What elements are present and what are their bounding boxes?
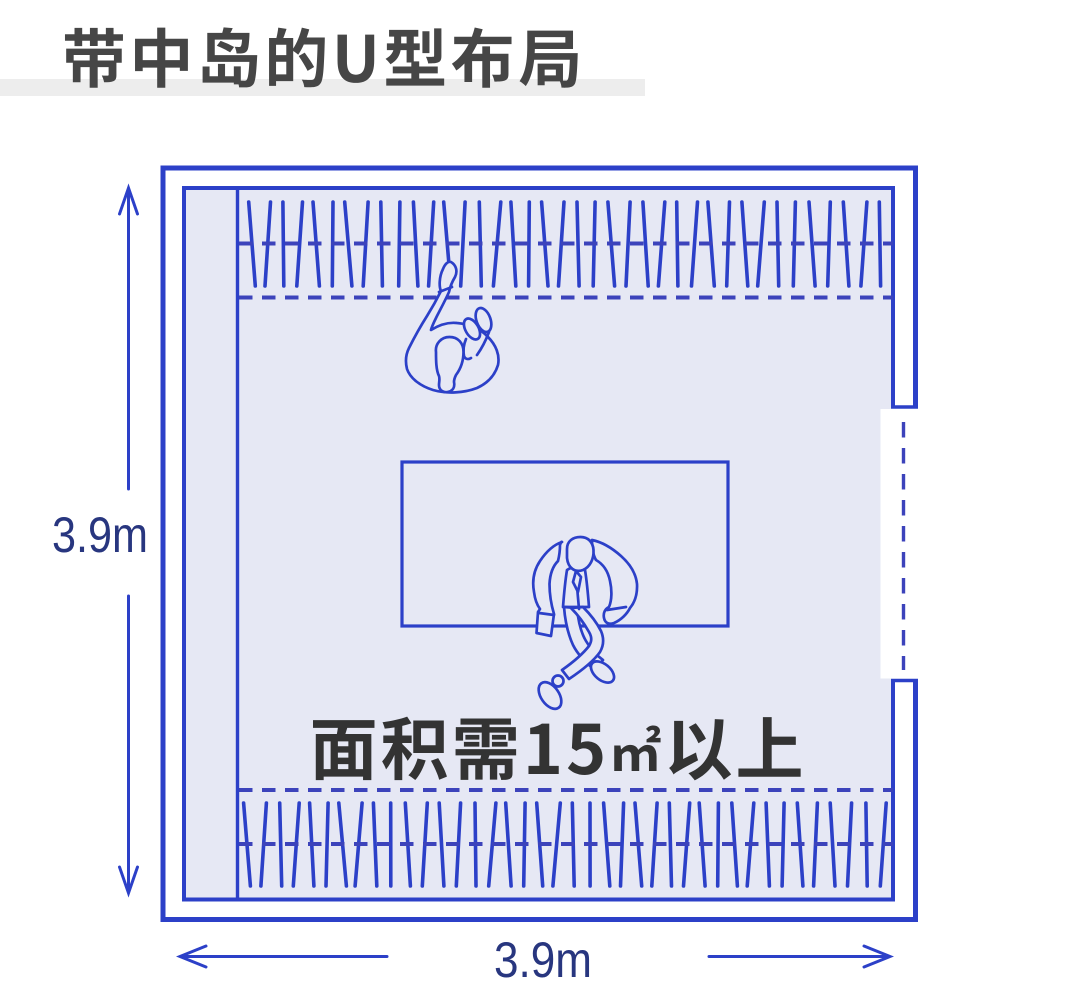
svg-text:3.9m: 3.9m: [494, 932, 592, 988]
svg-text:3.9m: 3.9m: [52, 507, 148, 563]
